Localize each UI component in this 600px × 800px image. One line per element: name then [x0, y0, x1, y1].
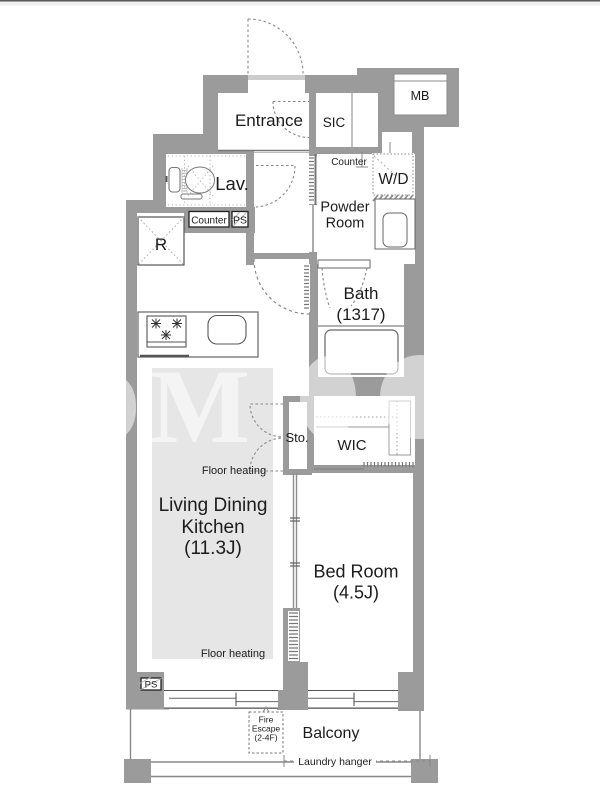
svg-text:Entrance: Entrance	[235, 111, 303, 130]
svg-text:Laundry hanger: Laundry hanger	[298, 756, 372, 768]
svg-text:WIC: WIC	[337, 437, 366, 454]
svg-text:(1317): (1317)	[336, 305, 385, 324]
svg-text:(4.5J): (4.5J)	[333, 583, 379, 603]
svg-text:PS: PS	[233, 215, 247, 227]
svg-text:Powder: Powder	[320, 200, 369, 216]
svg-text:(2-4F): (2-4F)	[254, 733, 277, 743]
svg-text:Counter: Counter	[331, 157, 367, 168]
svg-text:Bath: Bath	[344, 284, 379, 303]
svg-text:Balcony: Balcony	[303, 725, 360, 742]
svg-text:MB: MB	[411, 89, 430, 103]
svg-text:W/D: W/D	[378, 171, 408, 188]
svg-text:M: M	[150, 348, 250, 465]
svg-text:Bed Room: Bed Room	[313, 562, 398, 582]
svg-text:Kitchen: Kitchen	[181, 517, 244, 538]
svg-text:Floor heating: Floor heating	[202, 465, 266, 477]
svg-text:Sto.: Sto.	[285, 430, 308, 445]
svg-text:Counter: Counter	[191, 216, 227, 227]
svg-text:SIC: SIC	[323, 115, 346, 130]
svg-text:R: R	[155, 235, 167, 254]
svg-text:(11.3J): (11.3J)	[184, 538, 242, 559]
svg-text:O: O	[59, 348, 141, 465]
svg-text:Lav.: Lav.	[215, 173, 249, 194]
svg-text:Room: Room	[326, 216, 365, 232]
svg-text:PS: PS	[145, 680, 158, 691]
svg-text:Living Dining: Living Dining	[159, 495, 268, 516]
svg-text:Floor heating: Floor heating	[201, 648, 265, 660]
